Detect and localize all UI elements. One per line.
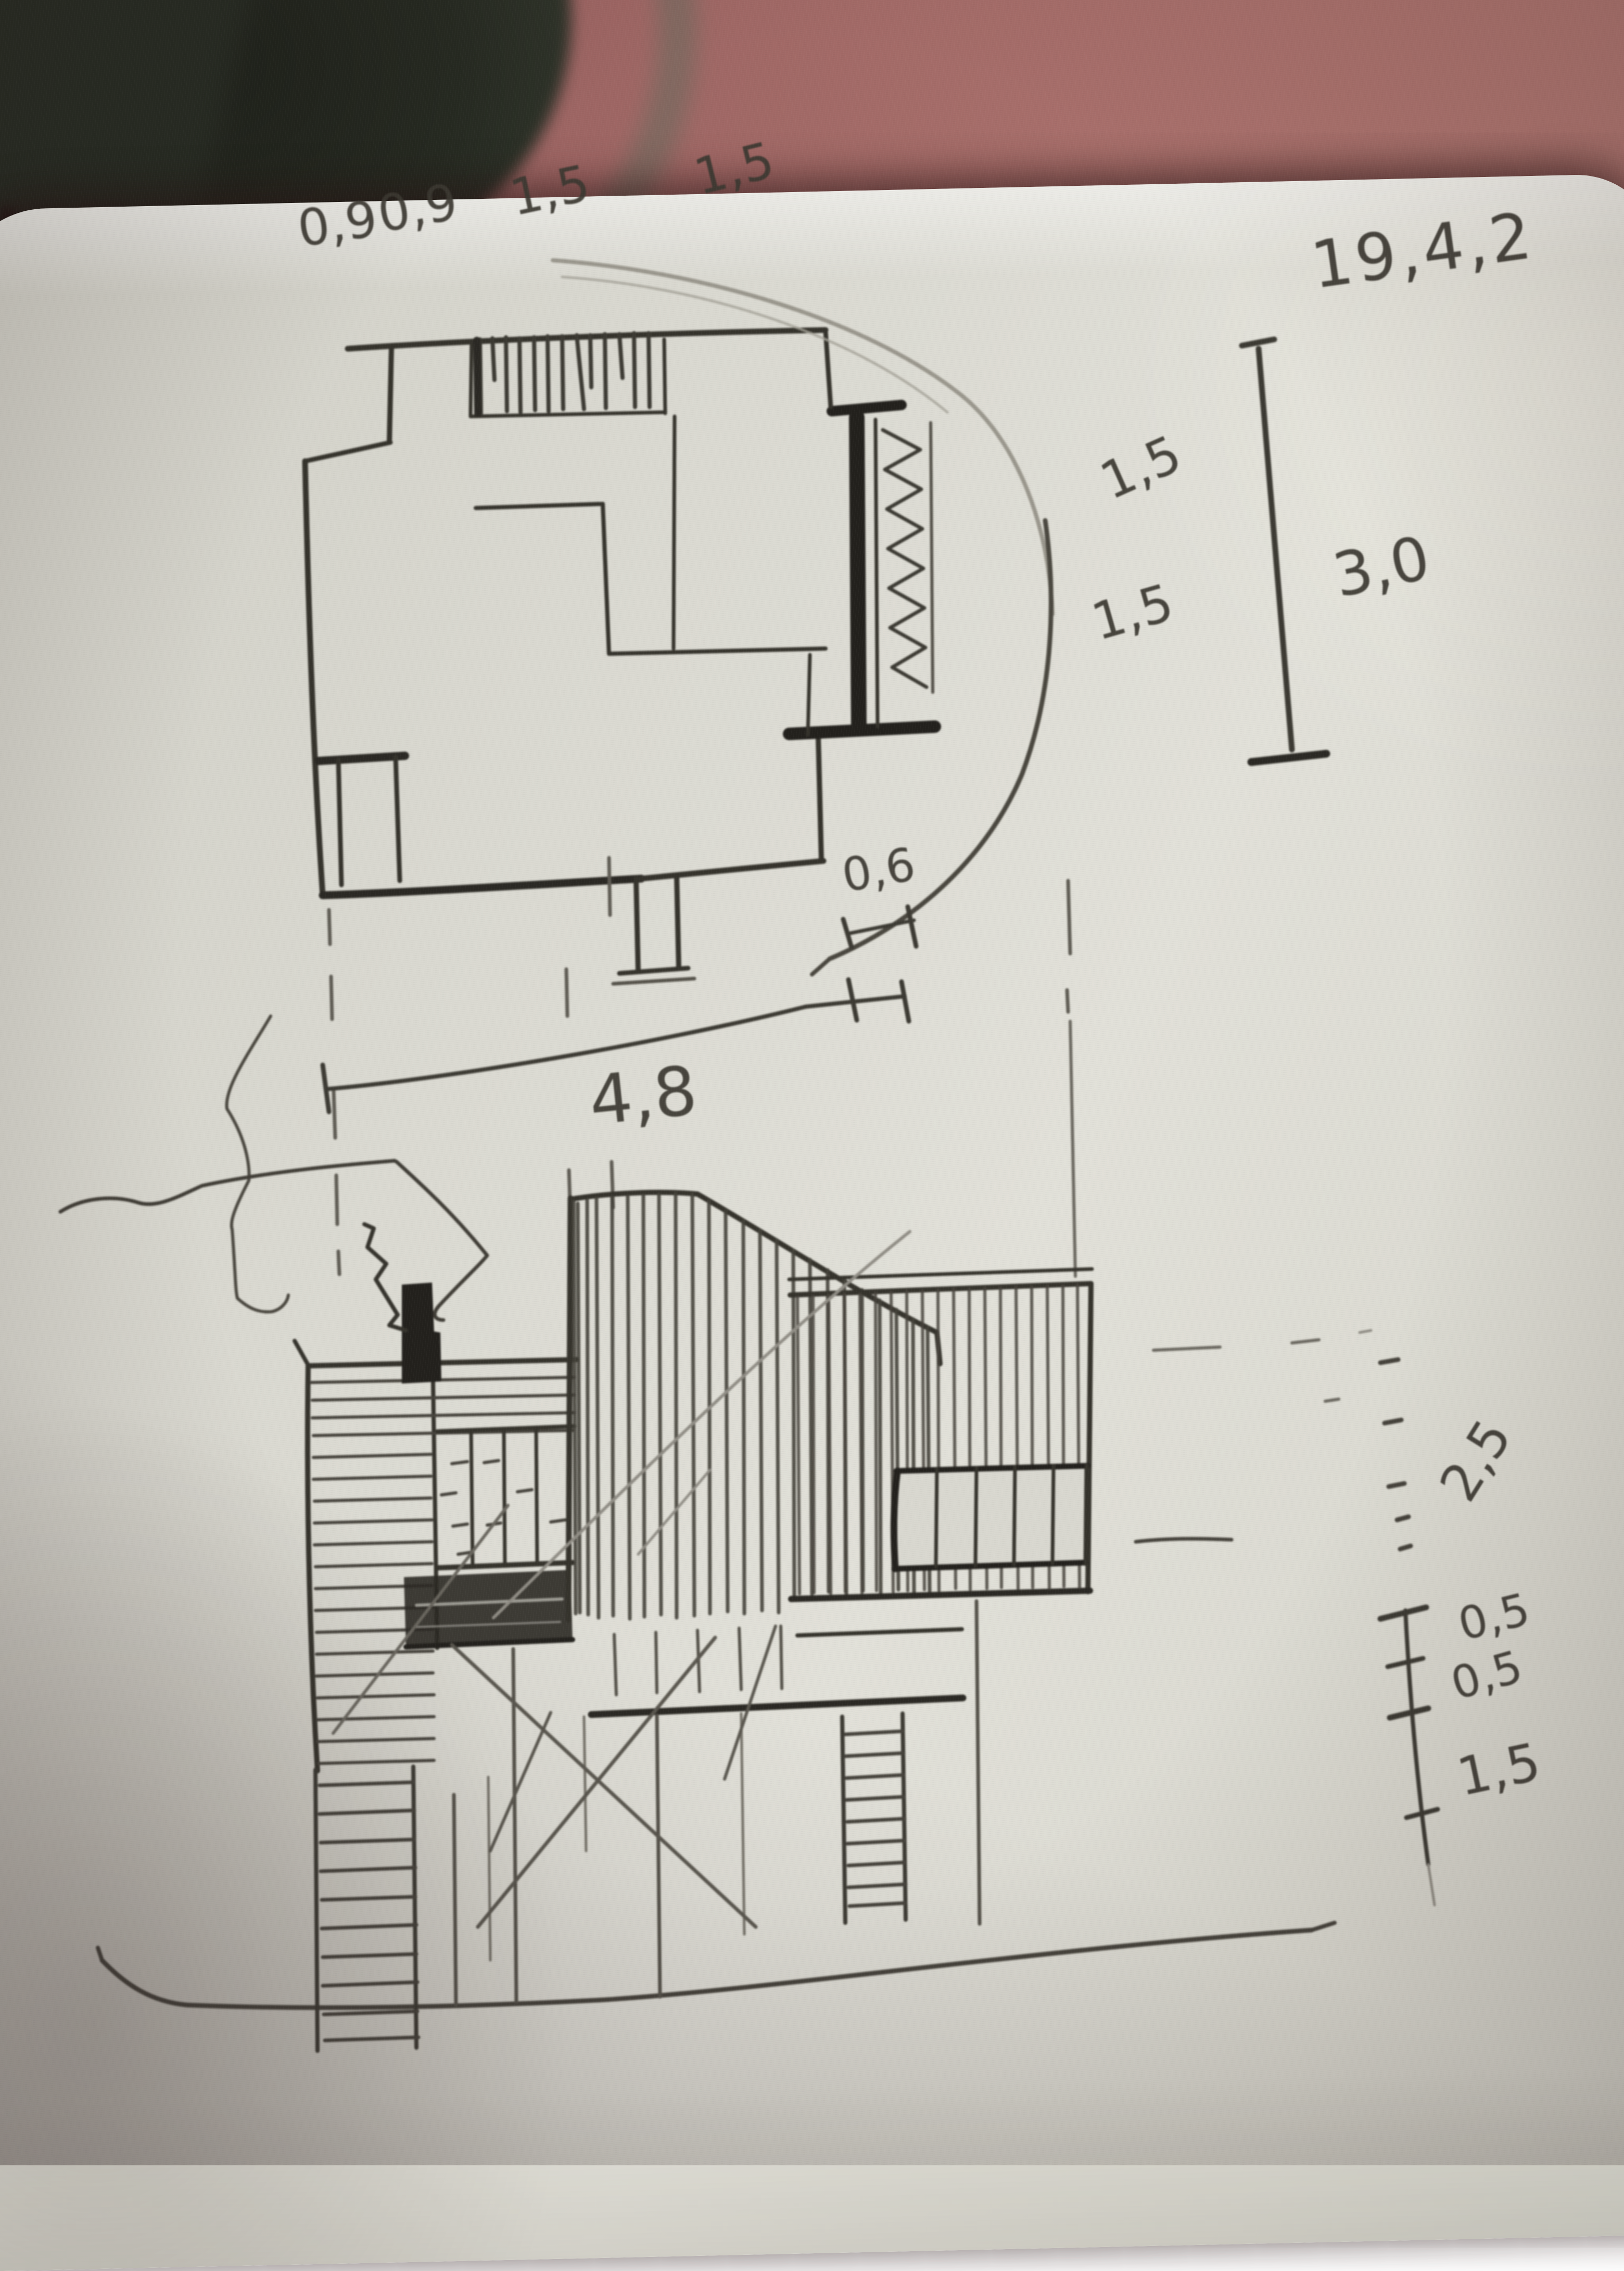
- elevation-sketch: [60, 1016, 1335, 2051]
- photo-scene: 0,9 0,9 1,5 1,5 19,4,2 1,5 1,5 3,0 0,6 4…: [0, 0, 1624, 2165]
- elevation-dimension-marks: [1136, 1330, 1438, 1905]
- floor-plan-sketch: [305, 260, 1052, 984]
- dim-label-plan-top-3: 1,5: [506, 158, 594, 223]
- dim-label-door-width: 0,6: [839, 842, 918, 899]
- sketch-drawing: [0, 0, 1624, 2165]
- dim-label-plan-right-total: 3,0: [1328, 528, 1435, 607]
- dim-label-plan-top-2: 0,9: [374, 176, 461, 239]
- dim-label-plan-width: 4,8: [586, 1057, 700, 1135]
- dim-label-plan-top-1: 0,9: [295, 194, 380, 254]
- dim-label-elev-base: 1,5: [1453, 1736, 1544, 1804]
